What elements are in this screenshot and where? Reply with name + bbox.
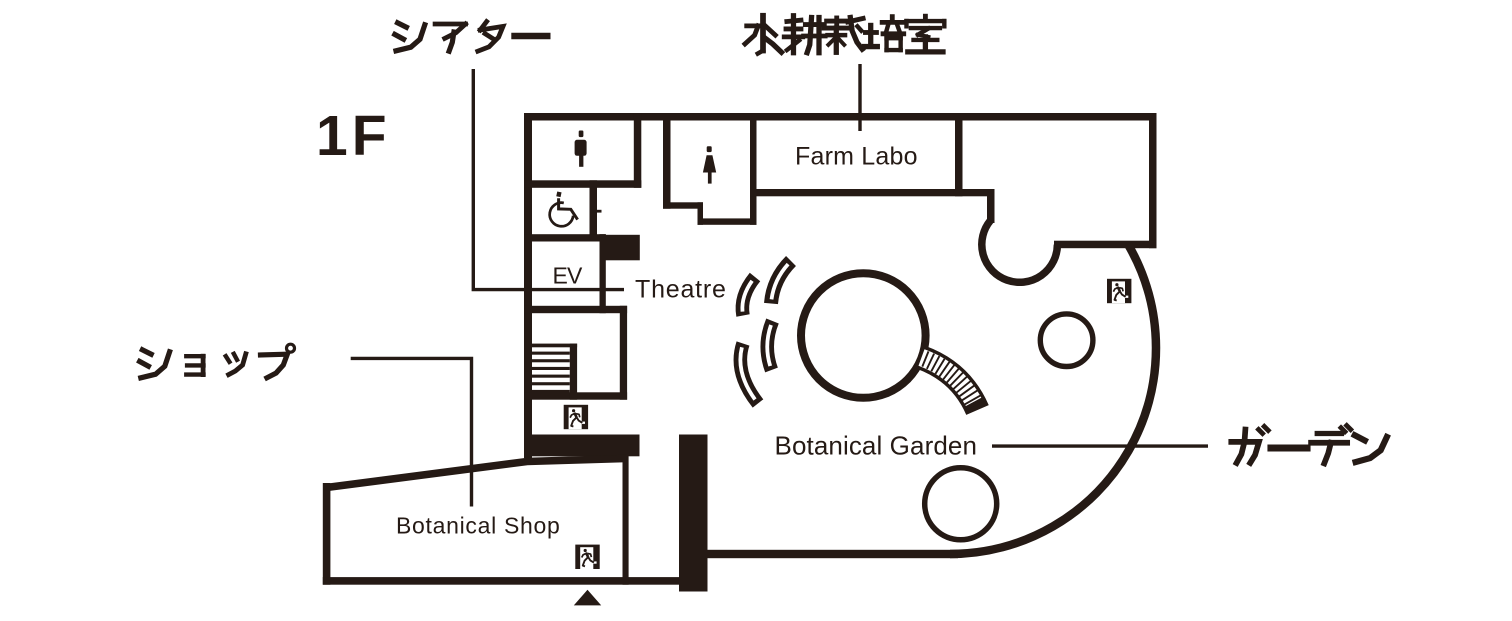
svg-text:1F: 1F — [316, 104, 391, 168]
svg-text:Theatre: Theatre — [635, 276, 727, 304]
svg-text:EV: EV — [553, 263, 584, 289]
svg-text:Farm Labo: Farm Labo — [795, 143, 918, 171]
svg-text:Botanical Shop: Botanical Shop — [396, 513, 561, 539]
svg-text:Botanical Garden: Botanical Garden — [775, 431, 978, 461]
